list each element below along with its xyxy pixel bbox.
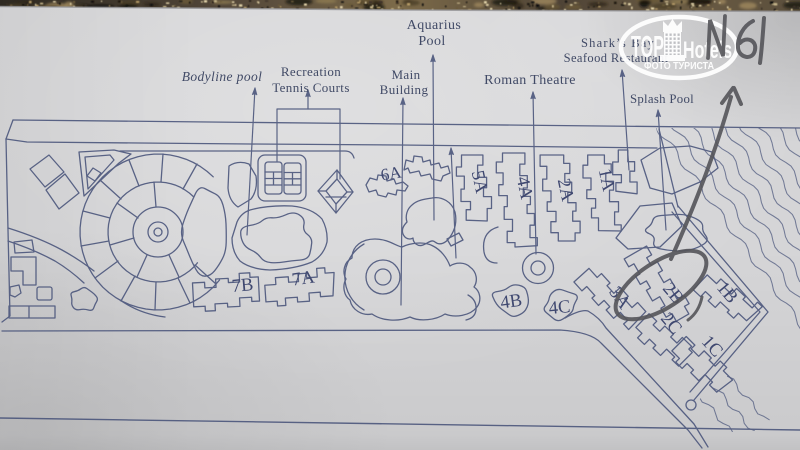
svg-text:Pool: Pool (418, 34, 445, 49)
svg-text:ФОТО ТУРИСТА: ФОТО ТУРИСТА (644, 61, 714, 72)
svg-text:4C: 4C (548, 297, 571, 319)
svg-text:Roman Theatre: Roman Theatre (484, 73, 576, 88)
svg-text:Main: Main (391, 67, 420, 82)
svg-text:Aquarius: Aquarius (407, 18, 462, 33)
svg-text:Tennis Courts: Tennis Courts (272, 80, 350, 95)
svg-text:Recreation: Recreation (281, 64, 341, 79)
svg-text:4B: 4B (499, 291, 523, 314)
svg-text:7B: 7B (231, 275, 254, 297)
svg-text:Splash Pool: Splash Pool (630, 92, 694, 106)
svg-text:Building: Building (380, 82, 429, 97)
svg-text:Bodyline pool: Bodyline pool (182, 69, 263, 84)
svg-text:6A: 6A (379, 162, 403, 184)
svg-text:TOP: TOP (631, 29, 664, 64)
svg-text:7A: 7A (291, 267, 317, 290)
